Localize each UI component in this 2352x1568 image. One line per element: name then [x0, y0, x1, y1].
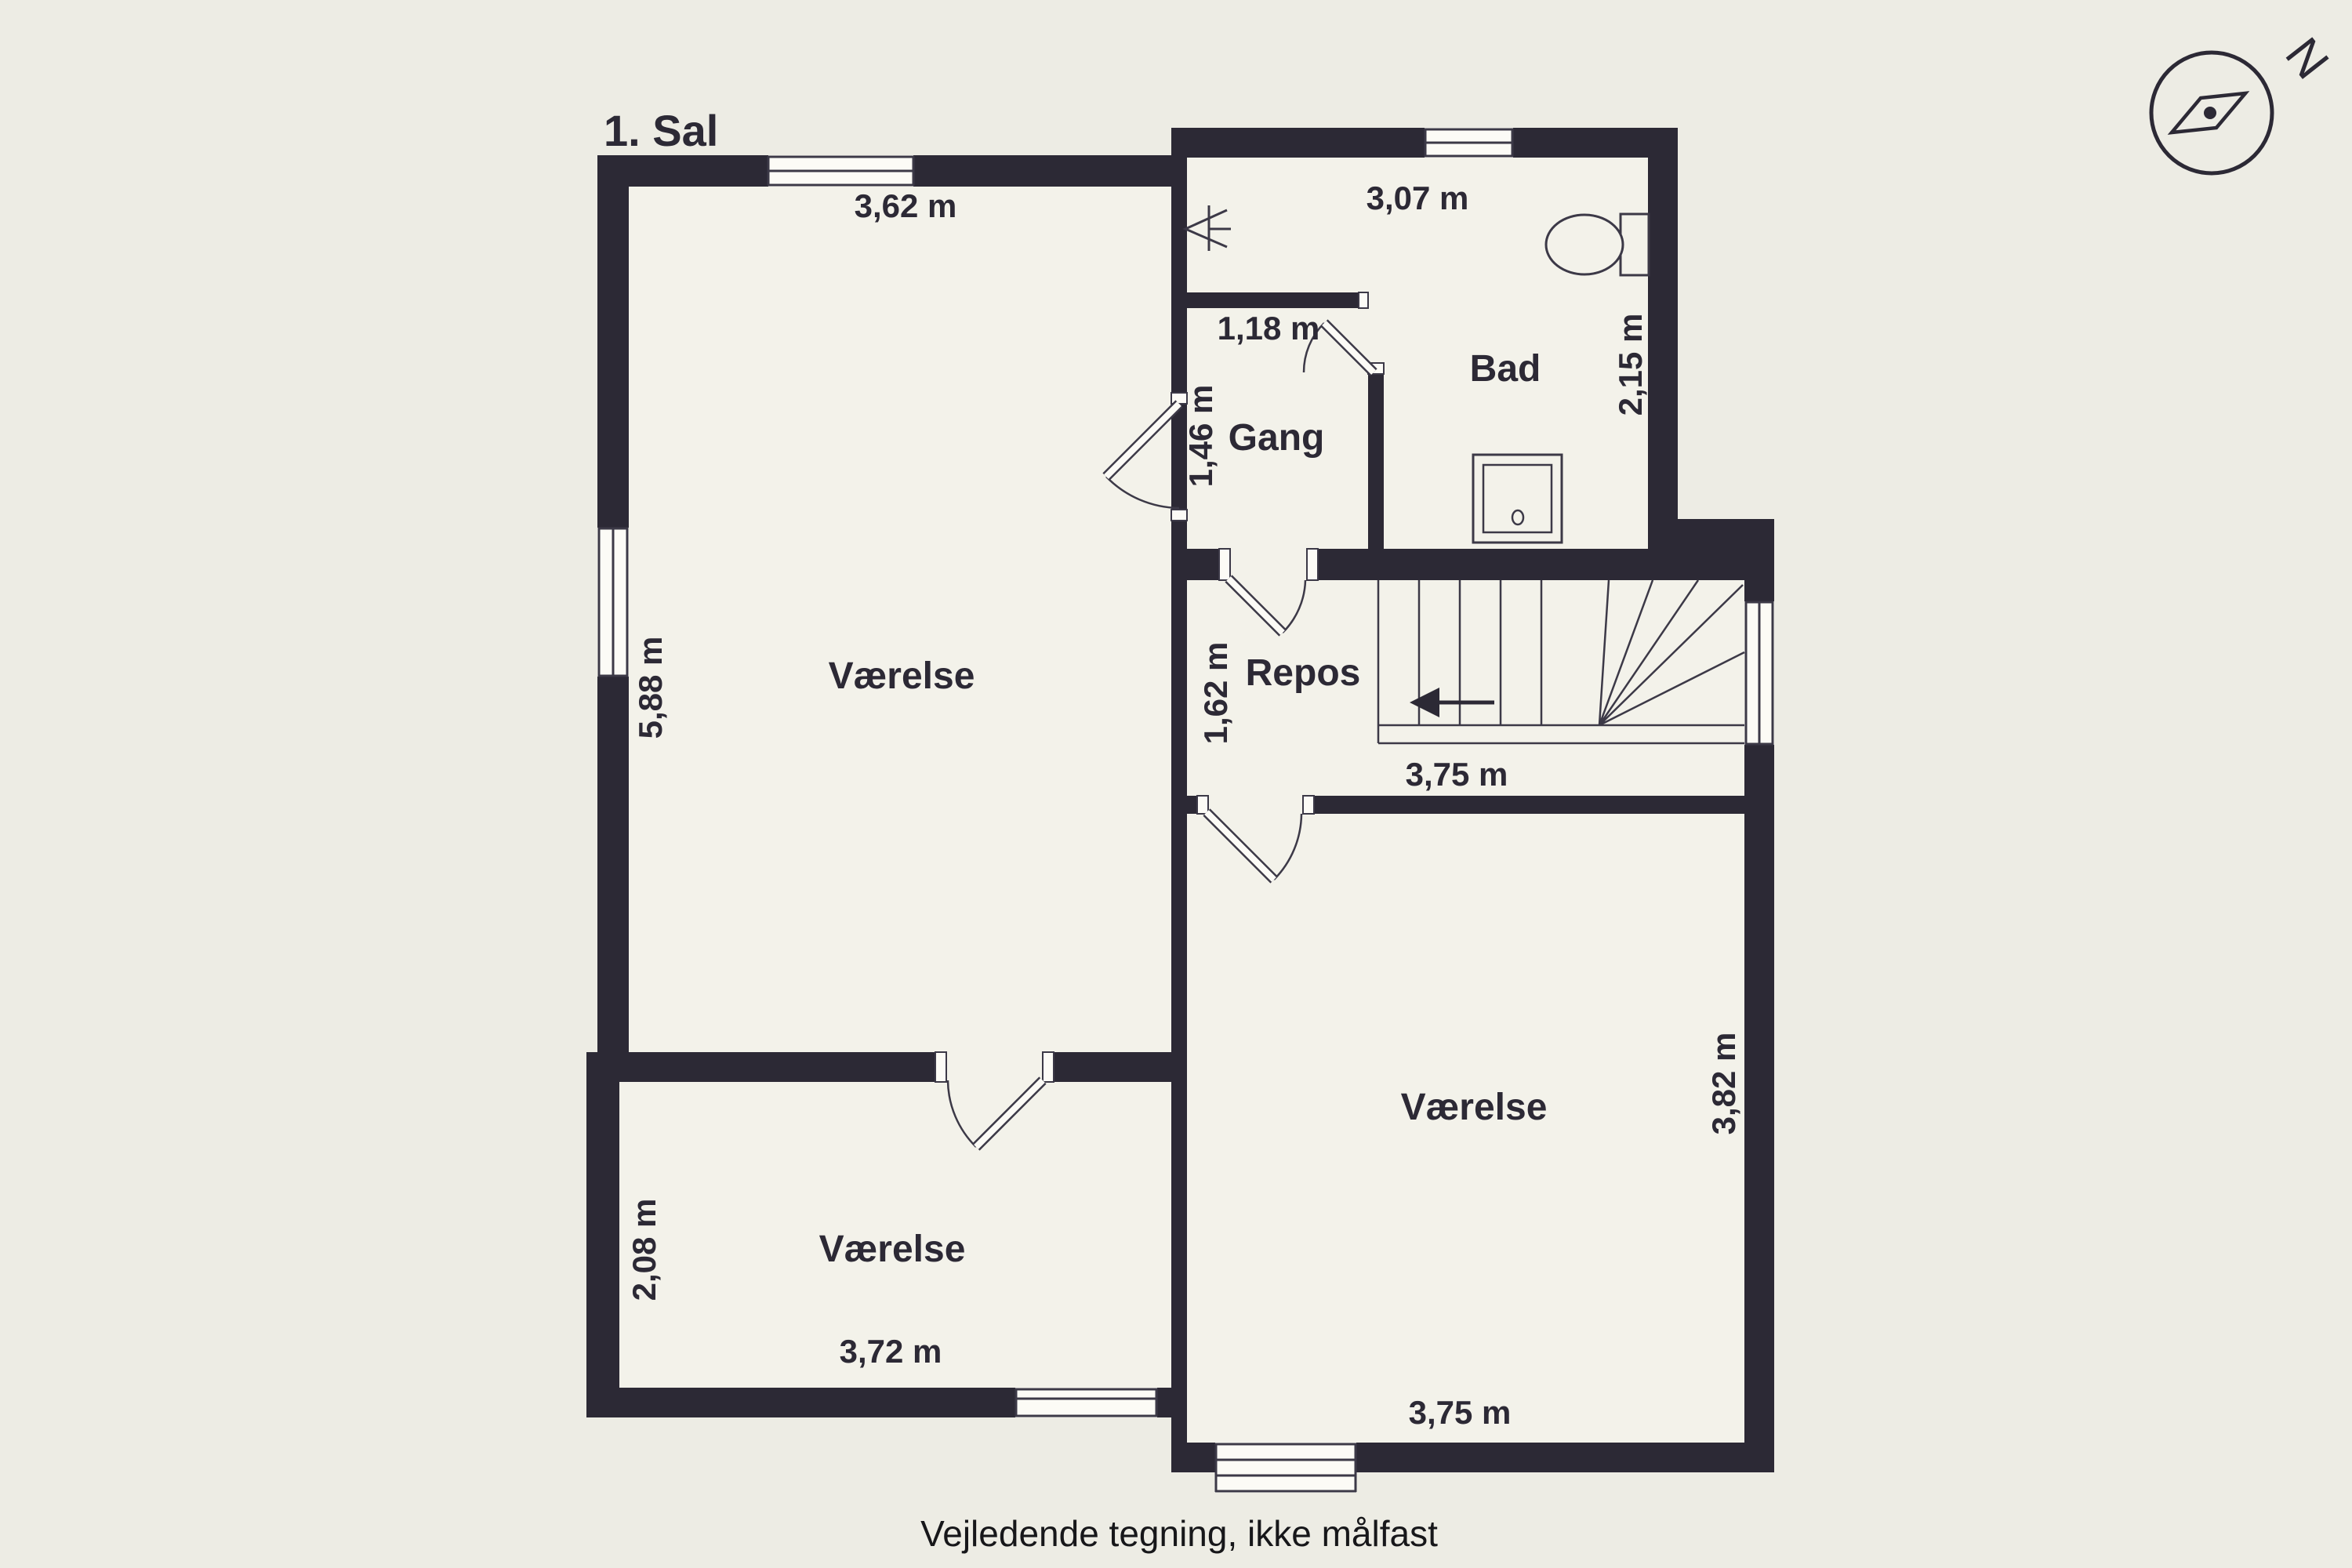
wall-center-partition — [1171, 185, 1187, 1472]
page-title: 1. Sal — [604, 106, 718, 155]
room-label-bath: Bad — [1470, 348, 1541, 390]
room-label-bottom-right: Værelse — [1401, 1087, 1548, 1128]
door-gap-floor — [1207, 796, 1303, 814]
window-right-wall — [1744, 601, 1774, 745]
dim-bottom-left-height: 2,08 m — [626, 1199, 662, 1301]
dim-bath-width: 3,07 m — [1367, 180, 1469, 216]
door-gap-floor — [1229, 549, 1307, 580]
room-label-hall: Gang — [1229, 417, 1325, 459]
wall-bottom-right-bottom-stub — [1171, 1443, 1215, 1472]
room-bottom-right-floor — [1187, 814, 1744, 1443]
dim-bottom-left-width: 3,72 m — [840, 1333, 942, 1370]
room-label-landing: Repos — [1246, 652, 1361, 694]
dim-bottom-right-height: 3,82 m — [1705, 1033, 1742, 1135]
wall-bottom-left-exterior — [586, 1052, 619, 1417]
wall-room-divider-right — [1043, 1052, 1187, 1082]
room-label-bottom-left: Værelse — [819, 1229, 966, 1270]
wall-bottom-left-bottom — [586, 1388, 1015, 1417]
window-bottom-left-room — [1015, 1388, 1157, 1417]
window-left-wall — [597, 528, 629, 677]
door-gap-floor — [946, 1052, 1043, 1082]
room-left-floor — [627, 185, 1171, 1052]
dim-bath-height: 2,15 m — [1612, 314, 1649, 416]
footer-disclaimer: Vejledende tegning, ikke målfast — [920, 1513, 1438, 1554]
wall-room-c-top — [1303, 796, 1744, 814]
wall-room-divider-left — [586, 1052, 946, 1082]
dim-landing-height: 1,62 m — [1197, 642, 1234, 745]
dim-left-room-width: 3,62 m — [855, 187, 957, 224]
dim-left-room-height: 5,88 m — [632, 637, 669, 739]
floorplan-page: N 1. Sal 3,62 m 3,07 m 1,18 m 1,46 m 2,1… — [0, 0, 2352, 1568]
wall-bath-right — [1648, 128, 1678, 549]
door-gap-floor — [1368, 308, 1384, 363]
toilet-icon — [1546, 214, 1649, 275]
wall-hall-top — [1171, 292, 1368, 308]
window-top-left-room — [768, 155, 913, 187]
window-bottom-right-room — [1215, 1443, 1356, 1493]
compass-north-label: N — [2274, 28, 2339, 89]
dim-hall-depth: 1,46 m — [1182, 385, 1219, 488]
room-label-left: Værelse — [829, 655, 975, 697]
wall-bottom-right-bottom — [1356, 1443, 1774, 1472]
wall-stairs-top — [1307, 549, 1744, 580]
window-bath-top — [1425, 128, 1513, 158]
dim-bottom-right-width: 3,75 m — [1409, 1394, 1512, 1431]
wall-hall-right — [1368, 363, 1384, 549]
dim-hall-width: 1,18 m — [1218, 310, 1320, 347]
compass-icon: N — [2151, 28, 2339, 173]
wall-junction-block — [1157, 1388, 1187, 1417]
dim-stairs-width: 3,75 m — [1406, 756, 1508, 793]
floorplan-drawing: N 1. Sal 3,62 m 3,07 m 1,18 m 1,46 m 2,1… — [0, 0, 2352, 1568]
